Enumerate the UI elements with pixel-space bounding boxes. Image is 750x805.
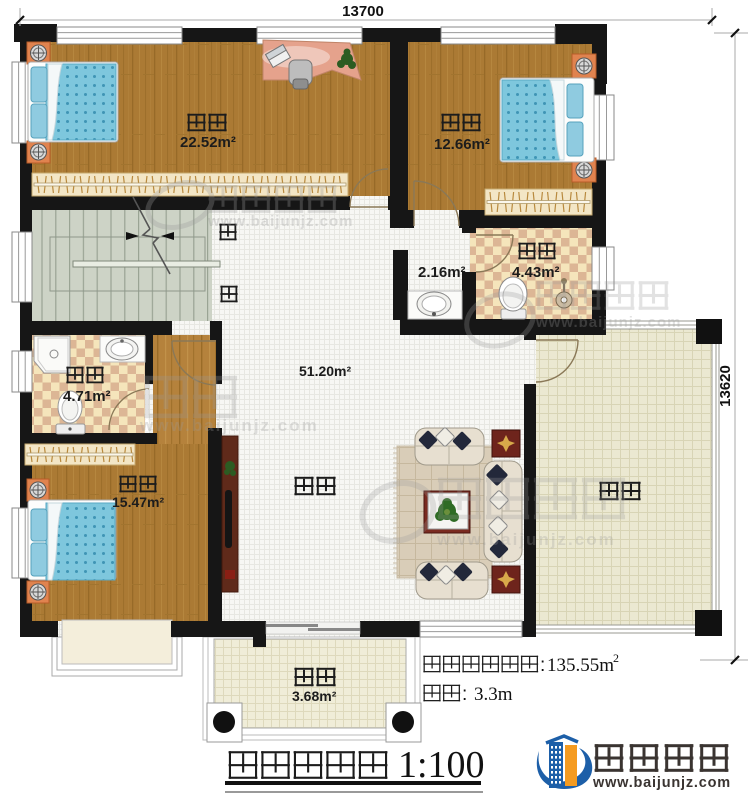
svg-text:www.baijunjz.com: www.baijunjz.com <box>436 530 616 549</box>
svg-text:51.20m²: 51.20m² <box>299 363 351 379</box>
svg-text:13700: 13700 <box>342 3 384 20</box>
svg-text:www.baijunjz.com: www.baijunjz.com <box>592 775 731 791</box>
svg-text:2.16m²: 2.16m² <box>418 264 466 281</box>
svg-text::: : <box>540 655 545 676</box>
svg-text:www.baijunjz.com: www.baijunjz.com <box>207 213 353 230</box>
svg-text:4.43m²: 4.43m² <box>512 264 560 281</box>
svg-text:1:100: 1:100 <box>398 744 485 786</box>
svg-text:135.55m: 135.55m <box>547 655 614 676</box>
svg-text:22.52m²: 22.52m² <box>180 134 236 151</box>
svg-text:15.47m²: 15.47m² <box>112 494 164 510</box>
svg-text:3.3m: 3.3m <box>474 684 513 705</box>
svg-text:3.68m²: 3.68m² <box>292 688 337 704</box>
svg-text::: : <box>462 684 467 705</box>
svg-text:2: 2 <box>613 651 619 665</box>
svg-text:13620: 13620 <box>717 365 734 407</box>
svg-text:4.71m²: 4.71m² <box>63 388 111 405</box>
svg-text:www.baijunjz.com: www.baijunjz.com <box>535 314 681 331</box>
svg-text:www.baijunjz.com: www.baijunjz.com <box>139 416 319 435</box>
svg-text:12.66m²: 12.66m² <box>434 136 490 153</box>
